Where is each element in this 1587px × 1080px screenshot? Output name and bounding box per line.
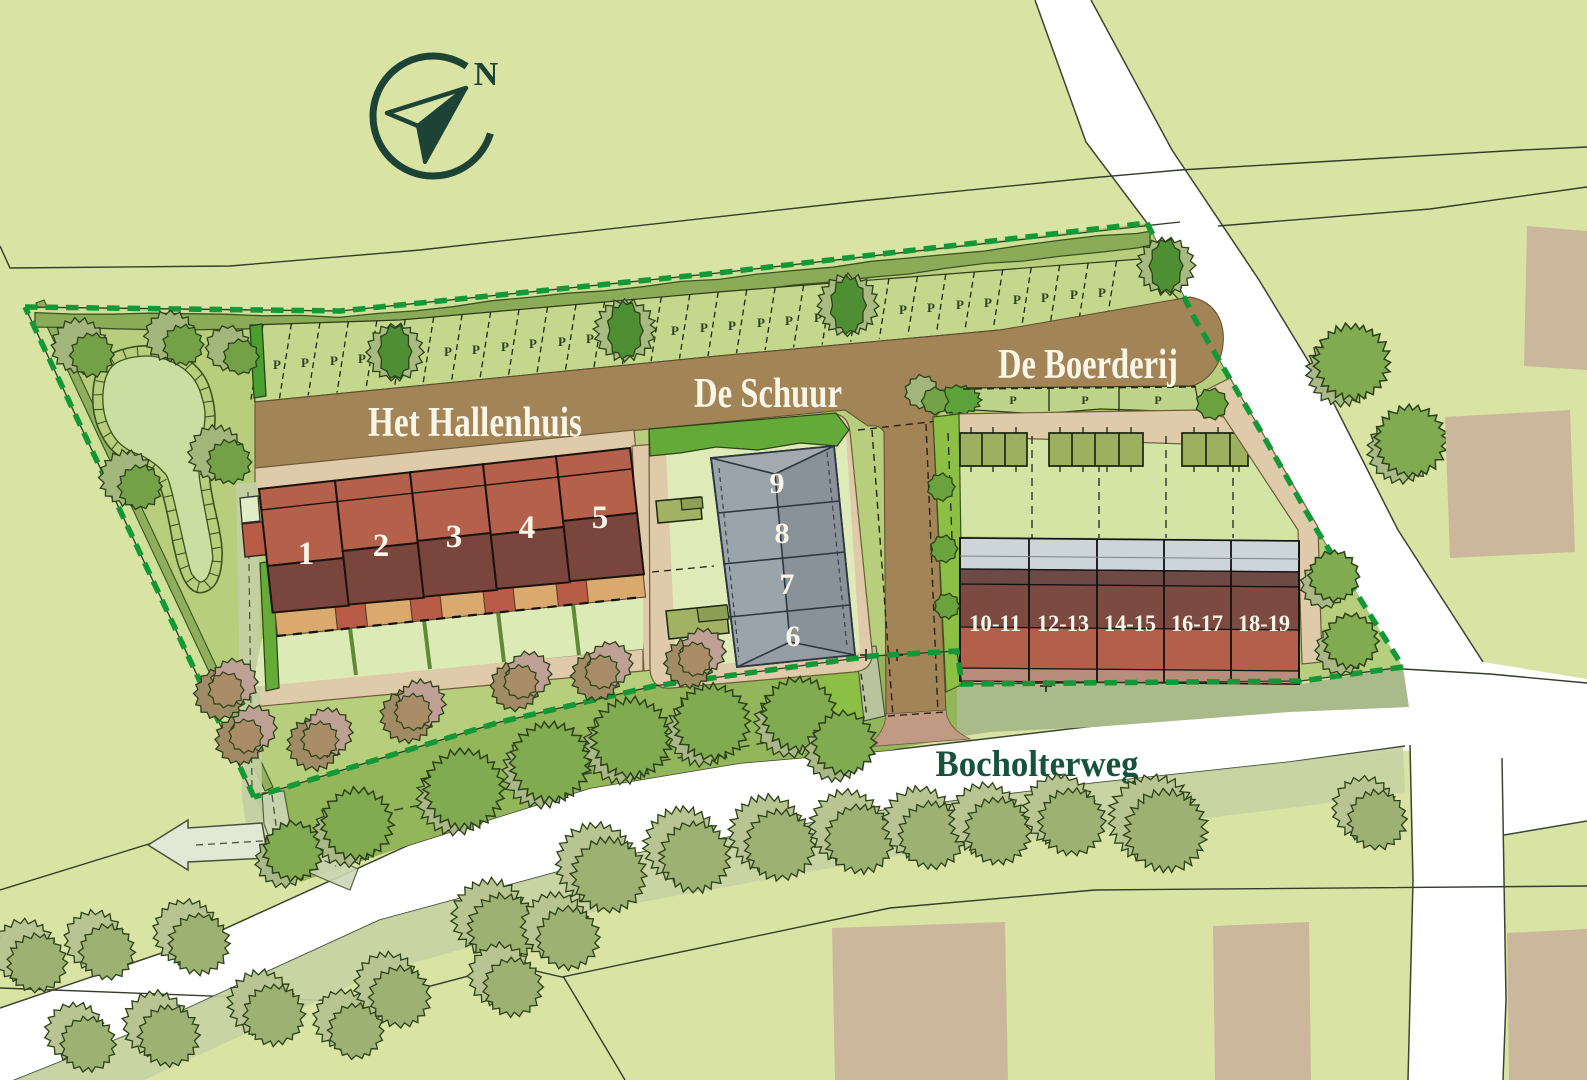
svg-text:9: 9 xyxy=(770,467,785,500)
svg-text:P: P xyxy=(984,295,992,310)
svg-text:2: 2 xyxy=(373,528,390,564)
svg-text:P: P xyxy=(558,334,566,349)
svg-text:1: 1 xyxy=(298,536,315,572)
svg-text:18-19: 18-19 xyxy=(1238,611,1290,636)
svg-text:De Boerderij: De Boerderij xyxy=(998,342,1178,388)
svg-text:3: 3 xyxy=(446,519,463,555)
svg-text:Bocholterweg: Bocholterweg xyxy=(936,744,1139,785)
svg-text:P: P xyxy=(728,318,736,333)
svg-text:P: P xyxy=(586,331,594,346)
svg-text:P: P xyxy=(785,313,793,328)
svg-text:7: 7 xyxy=(780,568,795,601)
svg-text:P: P xyxy=(301,355,309,370)
svg-text:10-11: 10-11 xyxy=(969,611,1021,636)
svg-text:P: P xyxy=(330,353,338,368)
svg-text:P: P xyxy=(1081,393,1088,407)
svg-text:P: P xyxy=(444,344,452,359)
svg-text:P: P xyxy=(956,297,964,312)
svg-text:12-13: 12-13 xyxy=(1037,611,1089,636)
svg-text:5: 5 xyxy=(592,500,609,536)
svg-text:P: P xyxy=(1041,290,1049,305)
svg-text:8: 8 xyxy=(775,517,790,550)
svg-text:P: P xyxy=(358,351,366,366)
svg-text:P: P xyxy=(529,336,537,351)
svg-text:P: P xyxy=(899,302,907,317)
svg-text:P: P xyxy=(1154,393,1161,407)
svg-text:16-17: 16-17 xyxy=(1171,611,1223,636)
svg-text:P: P xyxy=(1013,292,1021,307)
svg-text:N: N xyxy=(474,56,499,93)
svg-text:4: 4 xyxy=(519,510,536,546)
svg-text:P: P xyxy=(1070,287,1078,302)
svg-text:P: P xyxy=(700,320,708,335)
svg-text:P: P xyxy=(501,339,509,354)
svg-text:De Schuur: De Schuur xyxy=(694,371,842,417)
svg-text:6: 6 xyxy=(786,620,801,653)
svg-text:P: P xyxy=(273,357,281,372)
svg-text:14-15: 14-15 xyxy=(1104,611,1156,636)
svg-text:P: P xyxy=(472,342,480,357)
svg-text:P: P xyxy=(671,323,679,338)
svg-text:P: P xyxy=(1098,285,1106,300)
svg-text:P: P xyxy=(927,300,935,315)
svg-text:P: P xyxy=(757,315,765,330)
svg-text:P: P xyxy=(1009,393,1016,407)
svg-text:Het Hallenhuis: Het Hallenhuis xyxy=(368,400,582,446)
